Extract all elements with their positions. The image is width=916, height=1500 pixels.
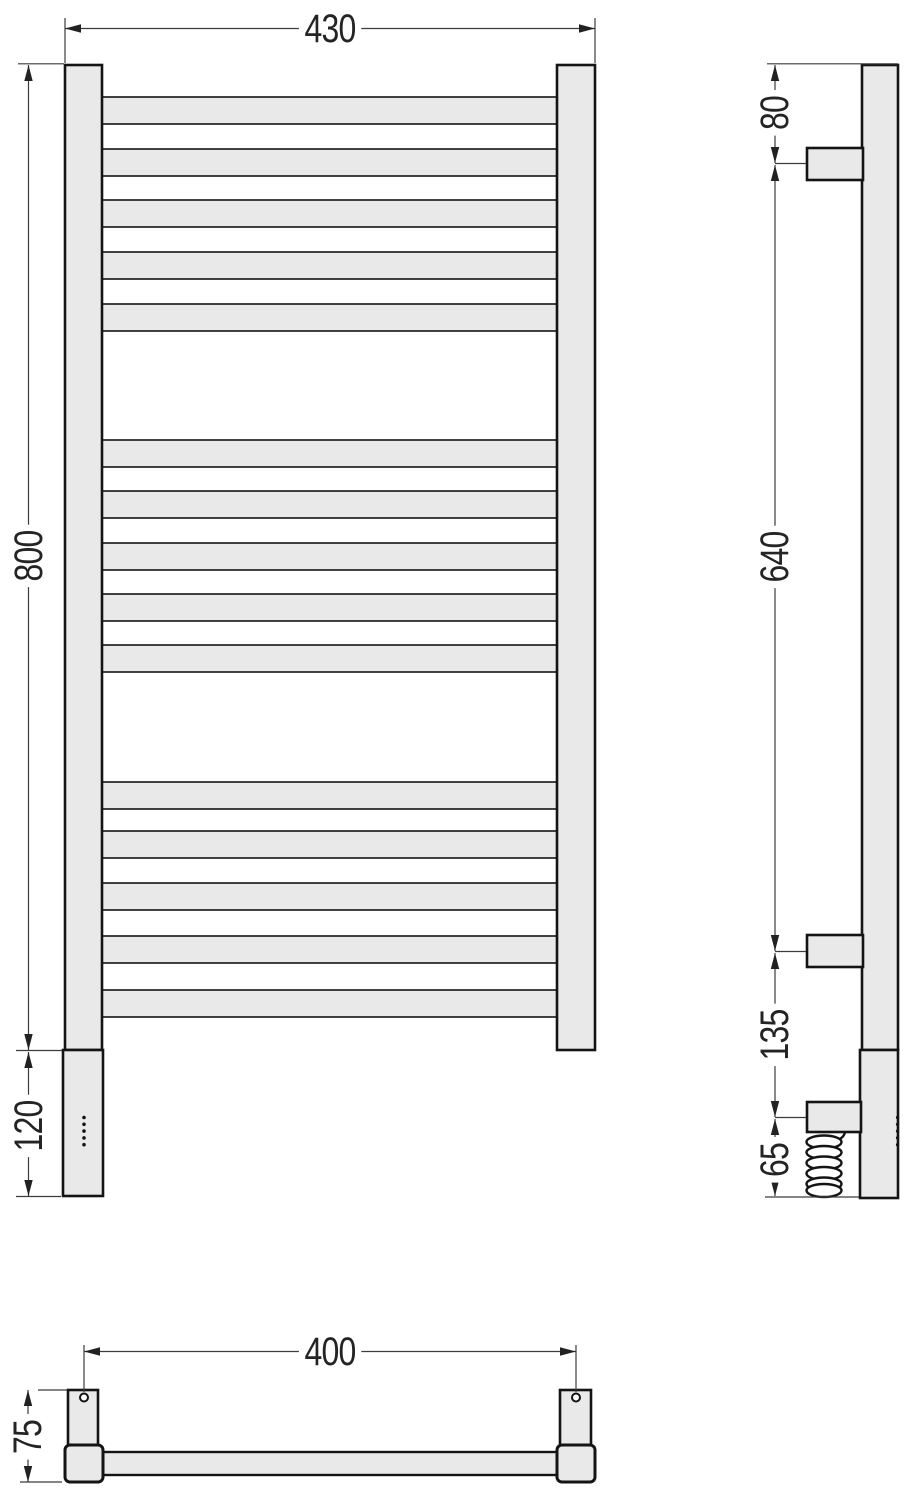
front-view — [63, 65, 595, 1196]
dim-label-side-lower-offset: 135 — [755, 1004, 795, 1066]
front-view-rungs — [101, 97, 558, 1017]
side-coiled-cable — [807, 1132, 846, 1197]
side-wall-bracket-bottom — [807, 935, 863, 967]
bottom-view — [65, 1390, 595, 1482]
bottom-right-base — [557, 1445, 595, 1482]
dim-label-side-cable-drop: 65 — [755, 1137, 795, 1182]
dim-label-front-width: 430 — [299, 9, 361, 49]
drawing-canvas — [0, 0, 916, 1500]
side-view — [807, 65, 900, 1198]
dim-label-side-top-offset: 80 — [755, 90, 795, 135]
bottom-left-screw-hole — [80, 1394, 88, 1402]
dim-label-front-height: 800 — [9, 525, 49, 587]
towel-rail-technical-drawing: 430 800 120 80 640 135 65 400 75 — [0, 0, 916, 1500]
dim-label-front-bottom-section: 120 — [9, 1095, 49, 1157]
bottom-left-base — [65, 1445, 103, 1482]
side-wall-bracket-top — [807, 148, 863, 180]
dim-label-side-bracket-span: 640 — [755, 526, 795, 588]
front-right-post — [557, 65, 595, 1050]
dim-label-bottom-mounting-centers: 400 — [299, 1332, 361, 1372]
bottom-right-screw-hole — [572, 1394, 580, 1402]
side-connection-box — [807, 1102, 861, 1132]
dim-label-bottom-depth: 75 — [8, 1414, 48, 1459]
front-left-post — [65, 65, 102, 1050]
bottom-bar — [103, 1452, 557, 1475]
side-post — [862, 65, 898, 1050]
side-control-box — [860, 1050, 898, 1198]
